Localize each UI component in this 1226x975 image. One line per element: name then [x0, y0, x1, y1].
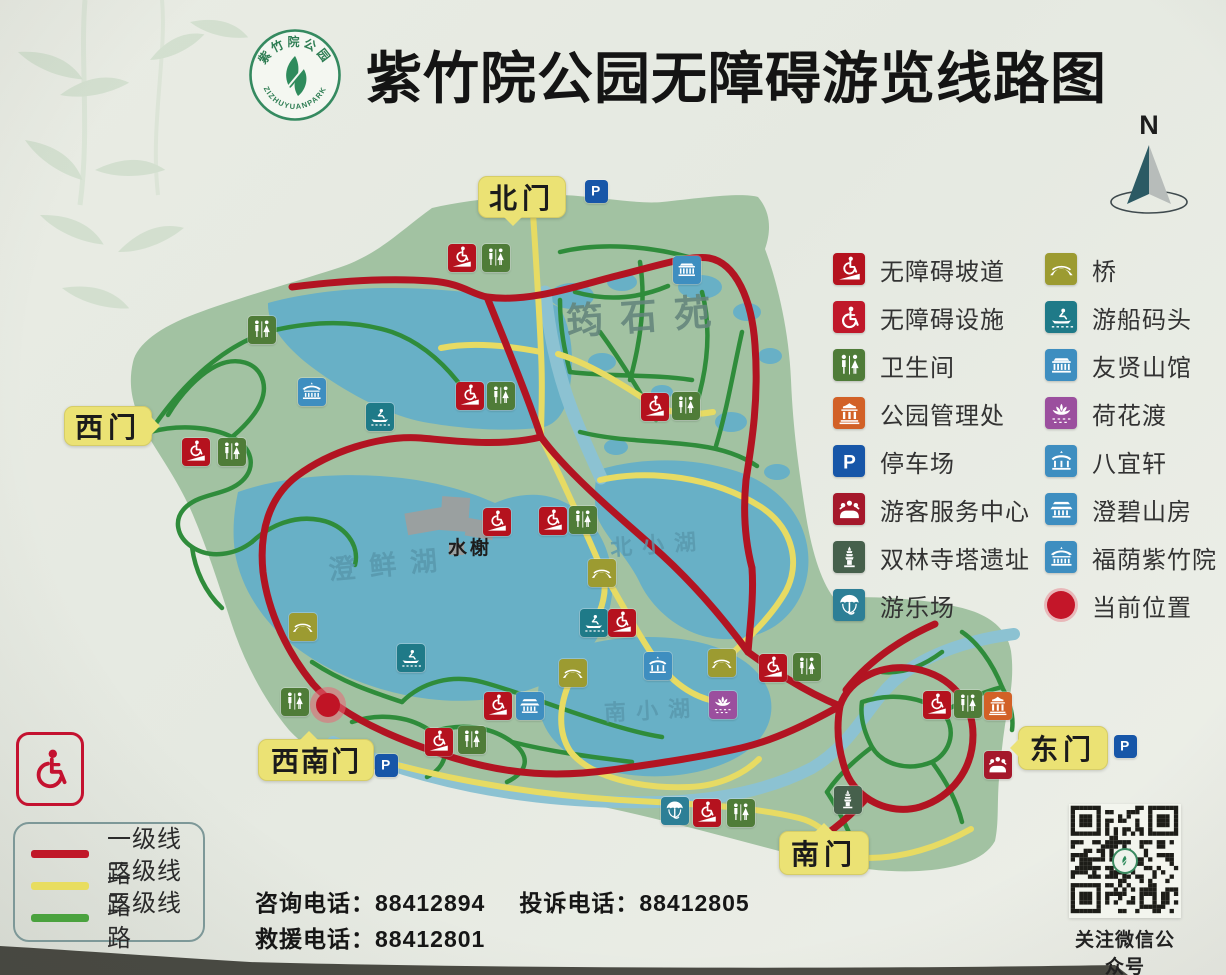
legend-item-toilet: 卫生间: [833, 341, 1030, 389]
gate-west: 西门: [64, 406, 152, 446]
legend-label: 游客服务中心: [880, 492, 1030, 527]
label-shuixie: 水榭: [448, 533, 492, 560]
gate-north: 北门: [478, 176, 566, 218]
legend-column-2: 桥游船码头友贤山馆荷花渡八宜轩澄碧山房福荫紫竹院当前位置: [1045, 245, 1217, 629]
compass-arrow-icon: [1106, 140, 1192, 218]
park-map-sign: P: [0, 0, 1226, 975]
gate-east: 东门: [1018, 726, 1108, 770]
legend-item-parking: 停车场: [833, 437, 1030, 485]
legend-label: 无障碍坡道: [880, 252, 1005, 287]
access-icon: [833, 301, 865, 333]
boat-icon: [1045, 301, 1077, 333]
compass-north-label: N: [1106, 110, 1192, 140]
route-legend-item: 三级线路: [31, 902, 203, 934]
legend-label: 双林寺塔遗址: [880, 540, 1030, 575]
route-line-swatch: [31, 914, 89, 922]
bridge-icon: [1045, 253, 1077, 285]
legend-label: 游船码头: [1092, 300, 1192, 335]
accessibility-symbol: [16, 732, 84, 806]
label-north-small-lake: 北小湖: [609, 524, 707, 563]
contact-item: 咨询电话：88412894: [255, 890, 485, 916]
fun-icon: [833, 589, 865, 621]
admin-icon: [833, 397, 865, 429]
park-logo: 紫竹院公园 ZIZHUYUANPARK: [248, 28, 342, 122]
label-junshiyuan: 筠石苑: [564, 280, 729, 345]
ramp-icon: [833, 253, 865, 285]
legend-item-service: 游客服务中心: [833, 485, 1030, 533]
legend-column-1: 无障碍坡道无障碍设施卫生间公园管理处停车场游客服务中心双林寺塔遗址游乐场: [833, 245, 1030, 629]
legend-label: 游乐场: [880, 588, 955, 623]
gate-label: 东门: [1030, 728, 1096, 768]
route-line-swatch: [31, 850, 89, 858]
legend-label: 友贤山馆: [1092, 348, 1192, 383]
legend-label: 停车场: [880, 444, 955, 479]
lotus-icon: [1045, 397, 1077, 429]
legend-item-admin: 公园管理处: [833, 389, 1030, 437]
legend-item-lotus: 荷花渡: [1045, 389, 1217, 437]
legend-label: 卫生间: [880, 348, 955, 383]
contact-item: 救援电话：88412801: [255, 926, 485, 952]
gate-label: 西门: [75, 406, 141, 446]
legend-label: 公园管理处: [880, 396, 1005, 431]
current-icon: [1047, 591, 1075, 619]
label-south-small-lake: 南小湖: [603, 691, 701, 728]
gate-label: 西南门: [271, 740, 361, 780]
pagoda-icon: [833, 541, 865, 573]
gate-label: 北门: [489, 177, 555, 217]
legend-label: 澄碧山房: [1092, 492, 1192, 527]
temple-icon: [1045, 541, 1077, 573]
parking-icon: [833, 445, 865, 477]
route-legend-label: 三级线路: [107, 883, 203, 953]
contact-item: 投诉电话：88412805: [519, 890, 749, 916]
contact-row: 咨询电话：88412894投诉电话：88412805: [255, 884, 784, 918]
pavilion-icon: [1045, 445, 1077, 477]
hall-icon: [1045, 349, 1077, 381]
toilet-icon: [833, 349, 865, 381]
legend-label: 八宜轩: [1092, 444, 1167, 479]
legend-item-pagoda: 双林寺塔遗址: [833, 533, 1030, 581]
bamboo-watermark: [15, 0, 250, 312]
legend-item-pavilion: 八宜轩: [1045, 437, 1217, 485]
legend-item-shanfang: 澄碧山房: [1045, 485, 1217, 533]
gate-label: 南门: [791, 833, 857, 873]
map-title: 紫竹院公园无障碍游览线路图: [366, 34, 1107, 115]
legend-item-ramp: 无障碍坡道: [833, 245, 1030, 293]
gate-south: 南门: [779, 831, 869, 875]
wheelchair-icon: [26, 745, 74, 793]
legend-label: 无障碍设施: [880, 300, 1005, 335]
legend-item-current: 当前位置: [1045, 581, 1217, 629]
legend-label: 桥: [1092, 252, 1117, 287]
gate-southwest: 西南门: [258, 739, 374, 781]
service-icon: [833, 493, 865, 525]
qr-caption: 关注微信公众号: [1066, 925, 1184, 975]
legend-item-fun: 游乐场: [833, 581, 1030, 629]
contact-row: 救援电话：88412801: [255, 920, 519, 954]
qr-center-logo-icon: [1112, 848, 1138, 874]
wechat-qr: 关注微信公众号: [1066, 804, 1184, 975]
shanfang-icon: [1045, 493, 1077, 525]
legend-item-temple: 福荫紫竹院: [1045, 533, 1217, 581]
route-line-swatch: [31, 882, 89, 890]
legend-label: 荷花渡: [1092, 396, 1167, 431]
legend-label: 福荫紫竹院: [1092, 540, 1217, 575]
legend-item-bridge: 桥: [1045, 245, 1217, 293]
route-legend: 一级线路二级线路三级线路: [13, 822, 205, 942]
legend-item-hall: 友贤山馆: [1045, 341, 1217, 389]
qr-code-icon: [1069, 804, 1181, 918]
legend-label: 当前位置: [1092, 588, 1192, 623]
legend-item-boat: 游船码头: [1045, 293, 1217, 341]
legend-item-access: 无障碍设施: [833, 293, 1030, 341]
compass: N: [1106, 110, 1192, 223]
